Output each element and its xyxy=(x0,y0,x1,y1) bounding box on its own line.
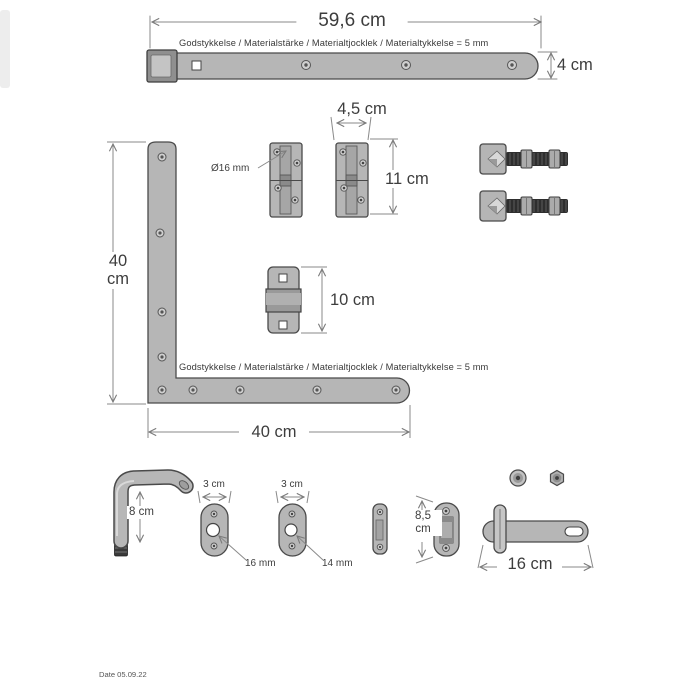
oval-plate-left-width-label: 3 cm xyxy=(199,479,229,490)
material-note-top: Godstykkelse / Materialstärke / Material… xyxy=(179,38,488,48)
oval-plate-right-hole-label: 14 mm xyxy=(322,558,353,569)
strap-hinge-barrel-inner xyxy=(151,55,171,77)
bolt-set-bottom xyxy=(480,191,568,221)
plates-width-dimension xyxy=(331,117,371,140)
keeper-height-dimension xyxy=(301,267,327,333)
oval-plate-right-width-label: 3 cm xyxy=(277,479,307,490)
hinge-plate-right xyxy=(336,143,368,217)
date-label: Date 05.09.22 xyxy=(99,671,147,680)
washer-part xyxy=(510,470,526,486)
strap-width-dimension xyxy=(538,52,557,79)
oval-plate-16-part xyxy=(198,491,246,560)
hex-nut-part xyxy=(551,471,564,486)
hardware-spec-drawing: 59,6 cm Godstykkelse / Materialstärke / … xyxy=(0,0,700,700)
material-note-bottom: Godstykkelse / Materialstärke / Material… xyxy=(179,362,488,372)
strap-body xyxy=(160,53,538,79)
strap-length-label: 59,6 cm xyxy=(300,10,404,31)
latch-keeper-height-label: 8,5 cm xyxy=(404,510,442,536)
oval-plate-left-hole-label: 16 mm xyxy=(245,558,276,569)
strap-square-hole xyxy=(192,61,201,70)
latch-length-label: 16 cm xyxy=(498,555,562,573)
oval-plate-14-part xyxy=(276,491,323,560)
latch-keeper-side-part xyxy=(373,504,387,554)
hinge-plates-part xyxy=(258,117,398,217)
middle-keeper-part xyxy=(266,267,327,333)
keeper-height-label: 10 cm xyxy=(328,291,377,309)
plates-width-label: 4,5 cm xyxy=(330,100,394,118)
plates-height-label: 11 cm xyxy=(383,170,431,188)
hinge-plate-left xyxy=(270,143,302,217)
strap-width-label: 4 cm xyxy=(557,56,593,74)
page-edge-artifact xyxy=(0,10,10,88)
hook-height-label: 8 cm xyxy=(127,506,156,519)
bracket-horizontal-label: 40 cm xyxy=(239,423,309,441)
bolt-set-top xyxy=(480,144,568,174)
bracket-vertical-label: 40 cm xyxy=(95,252,141,289)
pin-diameter-label: Ø16 mm xyxy=(211,163,249,174)
